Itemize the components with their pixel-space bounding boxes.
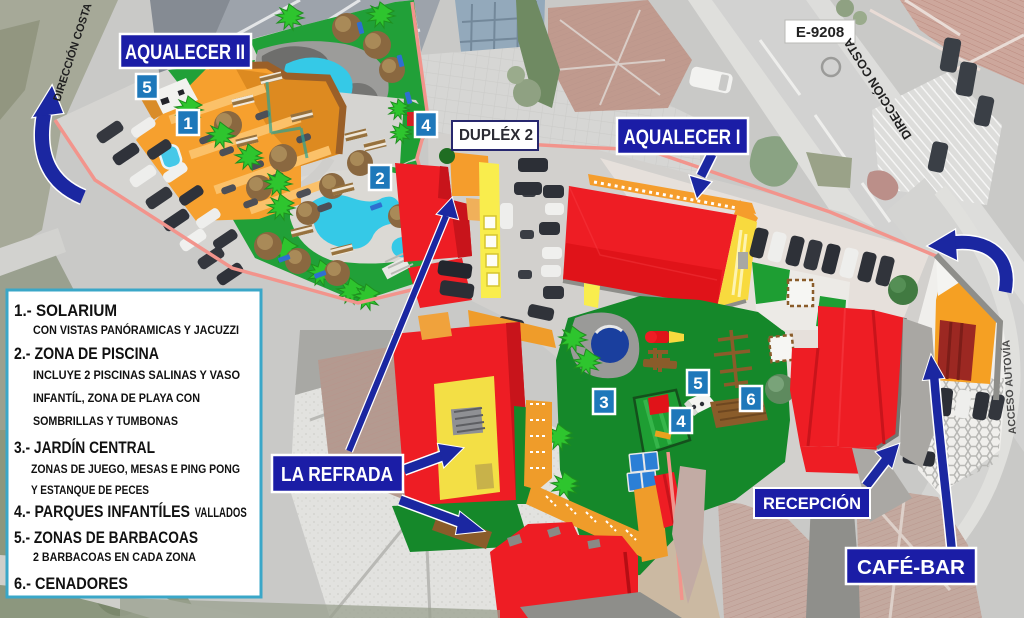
svg-text:DUPLÉX 2: DUPLÉX 2 (459, 125, 533, 144)
svg-text:E-9208: E-9208 (796, 24, 844, 41)
svg-text:CON VISTAS PANÓRAMICAS Y JACUZ: CON VISTAS PANÓRAMICAS Y JACUZZI (33, 322, 239, 337)
svg-text:ZONAS DE JUEGO, MESAS E PING P: ZONAS DE JUEGO, MESAS E PING PONG (31, 462, 240, 476)
svg-text:4: 4 (676, 412, 686, 431)
svg-text:INFANTÍL, ZONA DE PLAYA CON: INFANTÍL, ZONA DE PLAYA CON (33, 390, 200, 405)
svg-text:INCLUYE 2 PISCINAS SALINAS Y V: INCLUYE 2 PISCINAS SALINAS Y VASO (33, 368, 240, 382)
svg-text:2: 2 (375, 169, 384, 188)
svg-text:3: 3 (599, 393, 608, 412)
svg-text:AQUALECER I: AQUALECER I (624, 126, 741, 149)
svg-text:RECEPCIÓN: RECEPCIÓN (763, 494, 861, 513)
svg-text:4.- PARQUES INFANTÍLES VALLADO: 4.- PARQUES INFANTÍLES VALLADOS (14, 502, 247, 521)
svg-text:Y ESTANQUE DE PECES: Y ESTANQUE DE PECES (31, 483, 149, 497)
svg-text:1: 1 (183, 114, 192, 133)
svg-text:2 BARBACOAS EN CADA ZONA: 2 BARBACOAS EN CADA ZONA (33, 550, 196, 564)
svg-text:6.- CENADORES: 6.- CENADORES (14, 574, 128, 593)
svg-text:2.- ZONA DE PISCINA: 2.- ZONA DE PISCINA (14, 344, 159, 363)
svg-text:CAFÉ-BAR: CAFÉ-BAR (857, 556, 966, 579)
svg-text:5: 5 (693, 374, 702, 393)
svg-text:5: 5 (142, 78, 151, 97)
svg-text:3.- JARDÍN CENTRAL: 3.- JARDÍN CENTRAL (14, 438, 155, 457)
svg-text:4: 4 (421, 116, 431, 135)
svg-text:SOMBRILLAS Y TUMBONAS: SOMBRILLAS Y TUMBONAS (33, 414, 178, 428)
svg-text:6: 6 (746, 390, 755, 409)
svg-text:1.- SOLARIUM: 1.- SOLARIUM (14, 301, 117, 320)
svg-text:AQUALECER II: AQUALECER II (125, 41, 245, 64)
svg-text:5.- ZONAS DE BARBACOAS: 5.- ZONAS DE BARBACOAS (14, 528, 198, 547)
svg-text:LA REFRADA: LA REFRADA (281, 464, 393, 486)
